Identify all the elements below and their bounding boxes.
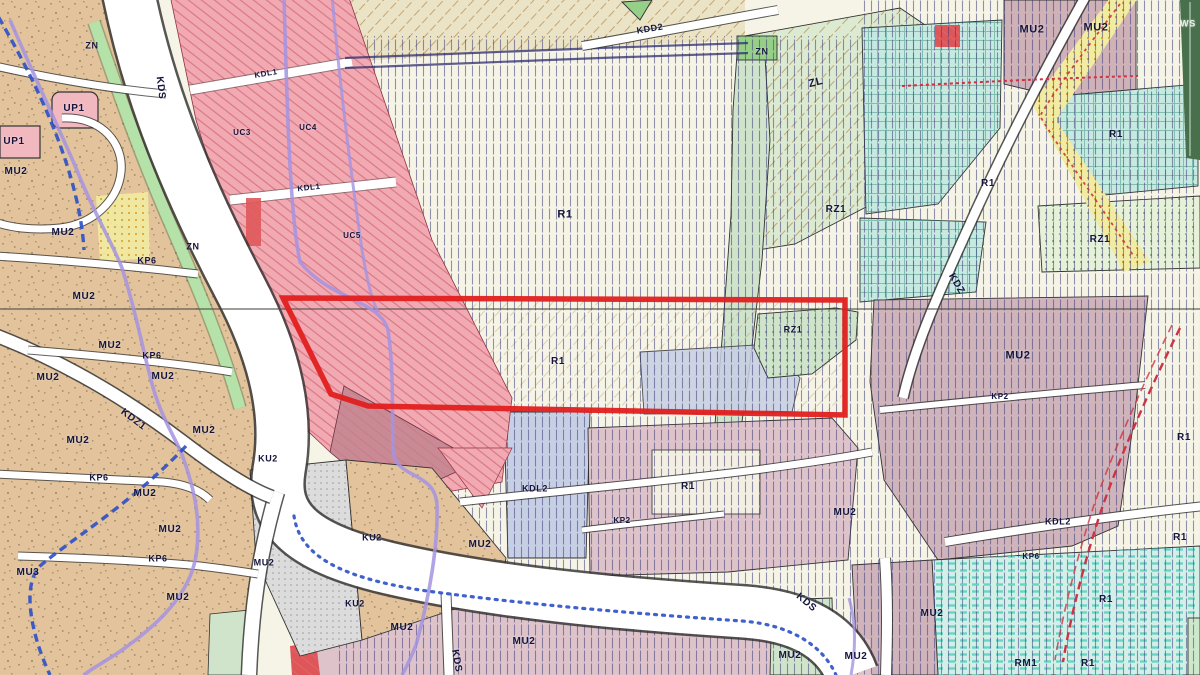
zoning-map-canvas xyxy=(0,0,1200,675)
zoning-map-viewport[interactable]: ZNKDSUP1UP1MU2UC3UC4KDL1KDL1UC5MU2ZNKP6M… xyxy=(0,0,1200,675)
